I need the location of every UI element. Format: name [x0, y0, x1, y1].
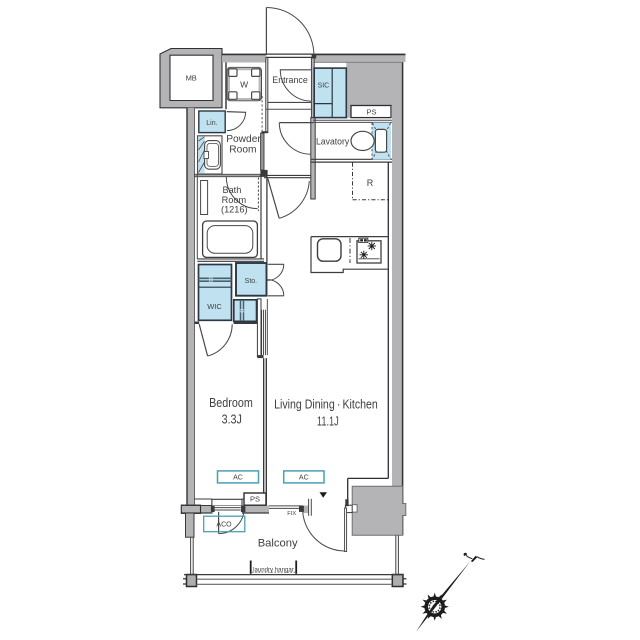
svg-text:AC: AC — [233, 475, 243, 482]
svg-text:WIC: WIC — [207, 302, 222, 311]
svg-text:ACO: ACO — [216, 522, 232, 529]
svg-text:PS: PS — [250, 495, 260, 504]
svg-text:Bedroom: Bedroom — [209, 395, 253, 410]
svg-text:laundry hangar: laundry hangar — [253, 566, 294, 573]
svg-text:11.1J: 11.1J — [317, 413, 339, 428]
svg-text:FIX: FIX — [287, 511, 296, 517]
svg-text:3.3J: 3.3J — [222, 412, 242, 427]
svg-text:Bath: Bath — [222, 185, 241, 195]
svg-text:Lin.: Lin. — [206, 120, 217, 127]
svg-text:Living Dining · Kitchen: Living Dining · Kitchen — [274, 396, 378, 411]
svg-text:AC: AC — [299, 475, 309, 482]
svg-text:Entrance: Entrance — [272, 75, 308, 85]
svg-text:Balcony: Balcony — [258, 537, 298, 549]
svg-text:(1216): (1216) — [221, 204, 248, 214]
svg-text:Room: Room — [222, 195, 247, 205]
svg-text:Room: Room — [229, 144, 256, 155]
svg-text:SIC: SIC — [318, 83, 330, 90]
svg-text:Sto.: Sto. — [245, 278, 258, 285]
svg-text:PS: PS — [366, 108, 376, 117]
svg-text:Lavatory: Lavatory — [316, 136, 350, 146]
svg-text:W: W — [240, 80, 248, 90]
svg-text:R: R — [367, 178, 374, 188]
svg-text:MB: MB — [186, 73, 197, 82]
